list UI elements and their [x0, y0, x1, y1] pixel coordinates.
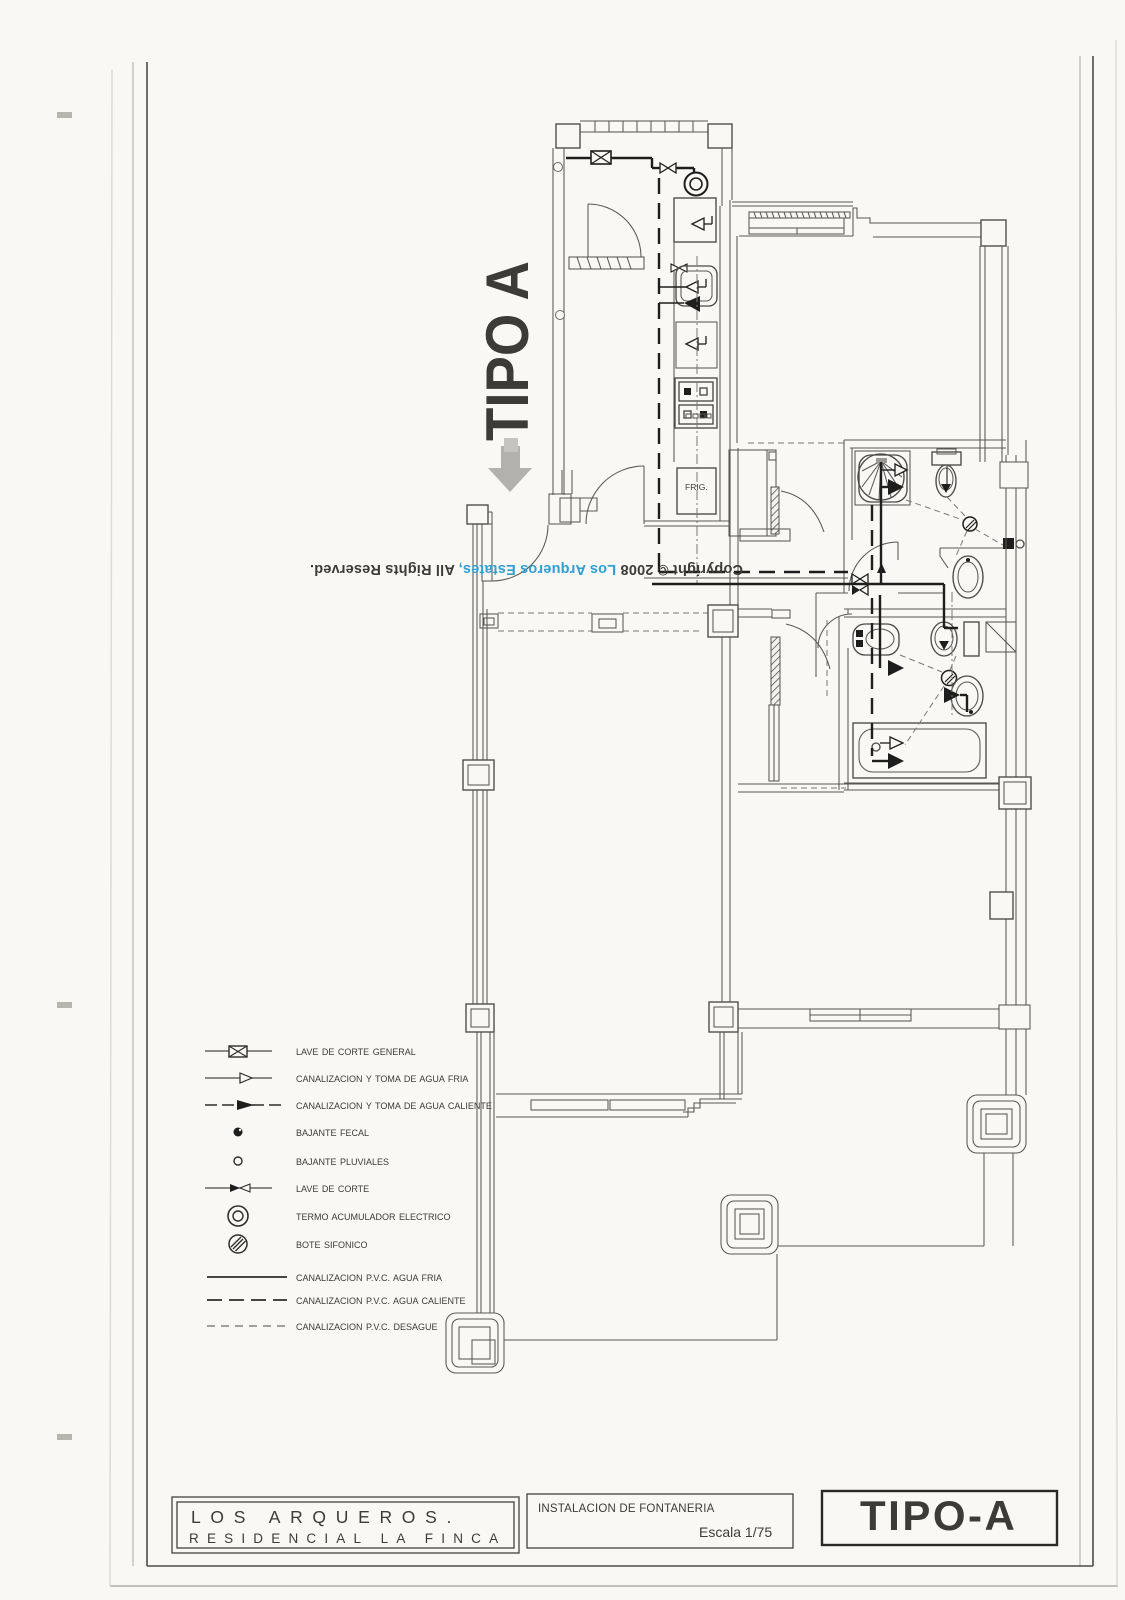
svg-text:Escala 1/75: Escala 1/75	[699, 1524, 772, 1540]
svg-text:RESIDENCIAL LA FINCA: RESIDENCIAL LA FINCA	[189, 1531, 506, 1546]
svg-text:TERMO ACUMULADOR ELECTRICO: TERMO ACUMULADOR ELECTRICO	[296, 1212, 451, 1222]
svg-text:BOTE SIFONICO: BOTE SIFONICO	[296, 1240, 368, 1250]
svg-text:CANALIZACION Y TOMA DE AGU: CANALIZACION Y TOMA DE AGUA CALIENTE	[296, 1101, 492, 1111]
svg-text:CANALIZACION P.V.C. AGUA CA: CANALIZACION P.V.C. AGUA CALIENTE	[296, 1296, 466, 1306]
svg-text:BAJANTE PLUVIALES: BAJANTE PLUVIALES	[296, 1157, 389, 1167]
svg-text:Copyright © 2008 Los Arqueros: Copyright © 2008 Los Arqueros Estates, A…	[310, 561, 743, 577]
svg-text:LOS ARQUEROS.: LOS ARQUEROS.	[191, 1507, 461, 1527]
svg-text:INSTALACION DE FONTANERIA: INSTALACION DE FONTANERIA	[538, 1503, 715, 1515]
svg-text:LAVE DE CORTE GENERAL: LAVE DE CORTE GENERAL	[296, 1047, 416, 1057]
svg-text:LAVE DE CORTE: LAVE DE CORTE	[296, 1184, 369, 1194]
svg-text:TIPO A: TIPO A	[475, 261, 542, 441]
svg-text:BAJANTE FECAL: BAJANTE FECAL	[296, 1128, 369, 1138]
svg-text:CANALIZACION P.V.C. AGUA FR: CANALIZACION P.V.C. AGUA FRIA	[296, 1273, 442, 1283]
svg-text:CANALIZACION P.V.C. DESAGUE: CANALIZACION P.V.C. DESAGUE	[296, 1322, 438, 1332]
svg-text:FRIG.: FRIG.	[685, 482, 708, 492]
svg-text:TIPO-A: TIPO-A	[860, 1492, 1017, 1539]
svg-text:CANALIZACION Y TOMA DE AGU: CANALIZACION Y TOMA DE AGUA FRIA	[296, 1074, 468, 1084]
